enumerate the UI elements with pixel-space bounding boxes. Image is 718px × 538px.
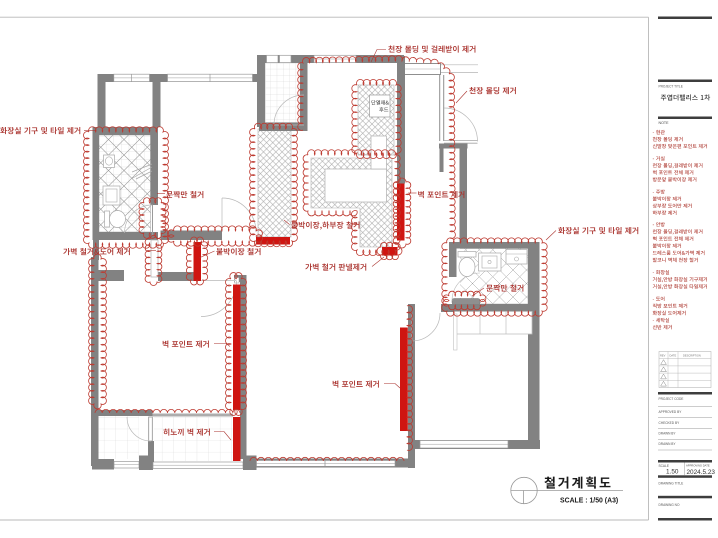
svg-text:SCALE: SCALE (659, 464, 669, 468)
svg-text:SCALE : 1/50 (A3): SCALE : 1/50 (A3) (560, 498, 618, 505)
svg-text:PROJECT CODE: PROJECT CODE (659, 397, 684, 401)
svg-text:REV: REV (660, 354, 666, 358)
svg-text:2024.5.23: 2024.5.23 (687, 469, 716, 476)
svg-text:DESCRIPTION: DESCRIPTION (683, 354, 701, 358)
svg-text:APPROVED BY: APPROVED BY (659, 410, 683, 414)
svg-text:APPROVING DATE: APPROVING DATE (686, 464, 710, 468)
svg-text:DRAWING TITLE: DRAWING TITLE (659, 482, 684, 486)
svg-text:1.50: 1.50 (666, 469, 679, 476)
svg-text:DATE: DATE (670, 354, 677, 358)
svg-text:DRAWING NO: DRAWING NO (659, 503, 680, 507)
svg-text:PROJECT TITLE: PROJECT TITLE (659, 85, 683, 89)
svg-text:NOTE: NOTE (659, 121, 670, 125)
svg-text:DRAWN BY: DRAWN BY (659, 442, 677, 446)
svg-text:DRAWN BY: DRAWN BY (659, 432, 677, 436)
svg-text:CHECKED BY: CHECKED BY (659, 421, 681, 425)
